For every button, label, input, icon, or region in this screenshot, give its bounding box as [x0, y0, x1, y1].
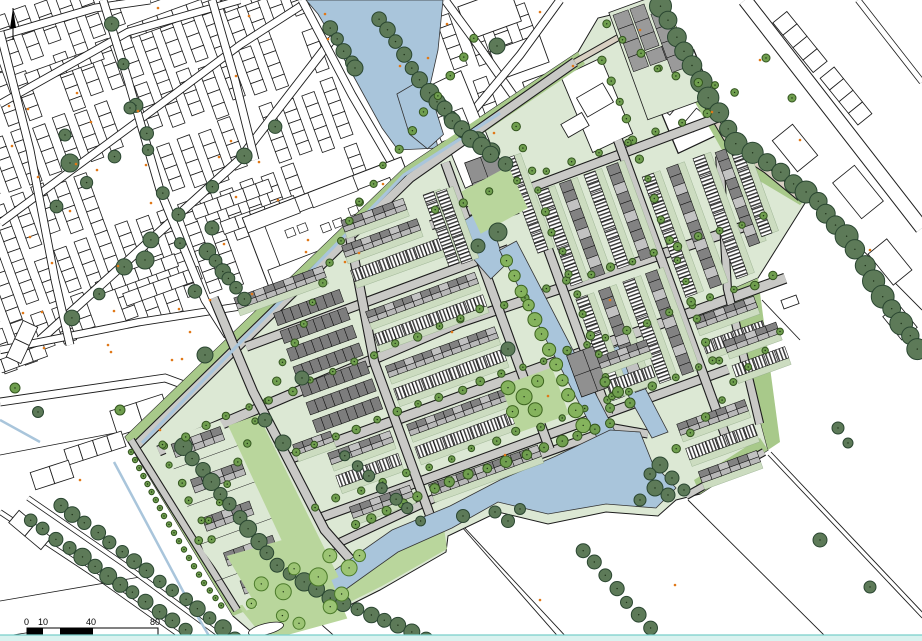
- svg-text:40: 40: [86, 617, 96, 627]
- svg-text:10: 10: [38, 617, 48, 627]
- svg-text:0: 0: [24, 617, 29, 627]
- svg-text:80: 80: [150, 617, 160, 627]
